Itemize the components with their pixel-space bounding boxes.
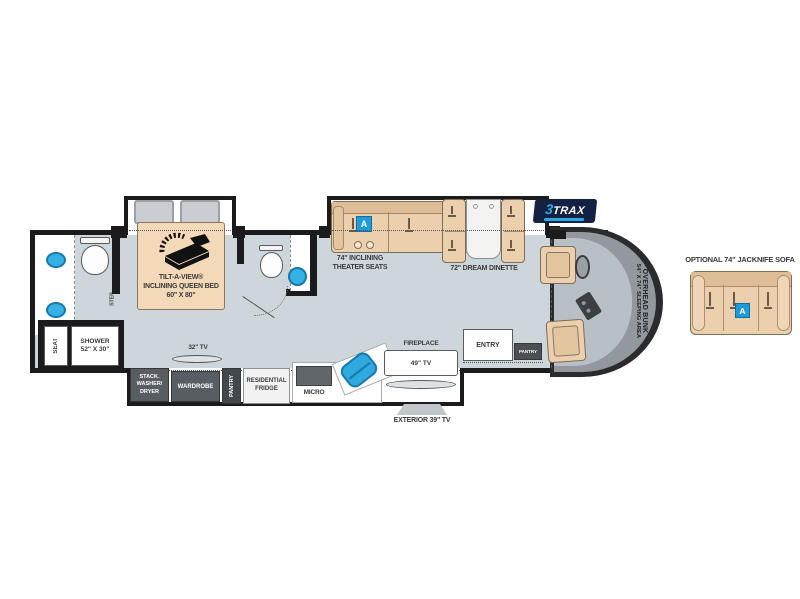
tv49-cabinet: 49" TV <box>384 350 458 376</box>
table-cupholder <box>489 204 494 209</box>
steering-wheel <box>575 255 590 279</box>
logo-trax: TRAX <box>552 206 585 217</box>
bunk-line1: OVERHEAD BUNK <box>641 226 648 376</box>
fireplace-label: FIREPLACE <box>383 340 459 348</box>
wardrobe-label: WARDROBE <box>178 384 214 390</box>
toilet-bowl <box>81 245 109 275</box>
seatbelt-icon <box>510 240 512 248</box>
table-cupholder <box>473 204 478 209</box>
wall-segment <box>237 232 244 264</box>
toilet <box>259 245 283 251</box>
seatbelt-icon <box>709 292 711 306</box>
sofa-divider <box>758 285 759 331</box>
theater-divider <box>388 212 389 252</box>
bench-divider <box>504 231 524 232</box>
theater-label: 74" INCLINING THEATER SEATS <box>300 255 420 273</box>
cupholder <box>366 241 374 249</box>
passenger-seat <box>546 319 587 364</box>
wall-segment <box>319 226 330 238</box>
bed-pillow <box>180 200 220 224</box>
entry-pantry: PANTRY <box>514 343 542 360</box>
floorplan-canvas: STEP SEAT SHOWER 52" X 30" TILT-A-VIEW® … <box>0 0 800 599</box>
console-knob <box>581 300 587 306</box>
seatbelt-icon <box>510 206 512 214</box>
shower-label: SHOWER 52" X 30" <box>80 338 109 355</box>
micro-label: MICRO <box>294 389 334 397</box>
slide-junction-line <box>129 230 231 231</box>
seat-label: SEAT <box>53 338 59 354</box>
dinette-table <box>466 199 501 259</box>
entry-label: ENTRY <box>476 342 499 349</box>
bath-sink <box>46 302 66 318</box>
exterior-tv-label: EXTERIOR 39" TV <box>368 417 476 426</box>
tv32-icon <box>172 355 222 363</box>
console-knob <box>586 308 592 314</box>
fridge-label: RESIDENTIAL FRIDGE <box>246 378 286 394</box>
bunk-line2: 54" X 74" SLEEPING AREA <box>635 226 641 376</box>
washer-dryer: STACK. WASHER/ DRYER <box>130 368 169 402</box>
bench-divider <box>445 231 465 232</box>
dinette-bench <box>501 199 525 263</box>
jackknife-sofa: A <box>690 271 792 335</box>
driver-seat <box>540 246 576 284</box>
pantry: PANTRY <box>222 368 241 404</box>
optional-sofa-label: OPTIONAL 74" JACKNIFE SOFA <box>664 255 800 264</box>
dinette-bench <box>442 199 466 263</box>
bed-label: TILT-A-VIEW® INCLINING QUEEN BED 60" X 8… <box>131 274 231 300</box>
sofa-armrest <box>777 275 790 331</box>
bed-pillow <box>134 200 174 224</box>
wardrobe: WARDROBE <box>171 371 220 402</box>
cupholder <box>354 241 362 249</box>
wall-segment <box>550 230 566 239</box>
theater-armrest <box>333 206 344 250</box>
bath-sink <box>46 252 66 268</box>
washer-label: STACK. WASHER/ DRYER <box>137 374 163 395</box>
residential-fridge: RESIDENTIAL FRIDGE <box>243 368 290 404</box>
sink-divider <box>349 362 371 380</box>
toilet-bowl <box>260 252 283 278</box>
overhead-bunk-label: OVERHEAD BUNK 54" X 74" SLEEPING AREA <box>630 226 648 376</box>
tilt-bed-icon <box>152 230 212 272</box>
dinette-label: 72" DREAM DINETTE <box>425 265 543 274</box>
tv49-label: 49" TV <box>411 360 431 367</box>
pantry-label: PANTRY <box>229 375 235 397</box>
entry-pantry-label: PANTRY <box>519 349 537 354</box>
seatbelt-icon <box>408 218 410 229</box>
tv49-icon <box>386 380 456 389</box>
seat-cushion <box>552 325 580 357</box>
sofa-divider <box>723 285 724 331</box>
tv32-label: 32" TV <box>170 344 226 352</box>
exterior-tv-icon <box>397 404 447 415</box>
seatbelt-icon <box>451 206 453 214</box>
shower-seat: SEAT <box>44 326 68 366</box>
slide-junction-line <box>332 230 544 231</box>
sofa-armrest <box>692 275 705 331</box>
entry: ENTRY <box>463 329 513 361</box>
3trax-logo: 3 TRAX <box>533 199 598 223</box>
option-a-badge: A <box>735 303 750 318</box>
seatbelt-icon <box>767 292 769 306</box>
seatbelt-icon <box>451 240 453 248</box>
sofa-backrest <box>691 272 791 287</box>
wall-segment <box>112 232 120 294</box>
entry-step-line <box>463 362 543 363</box>
logo-tagline-bar <box>544 218 584 221</box>
shower: SHOWER 52" X 30" <box>71 326 119 366</box>
seat-cushion <box>546 252 570 278</box>
seatbelt-icon <box>352 218 354 229</box>
step-label: STEP <box>108 286 118 312</box>
toilet <box>80 237 110 244</box>
microwave <box>296 366 332 386</box>
